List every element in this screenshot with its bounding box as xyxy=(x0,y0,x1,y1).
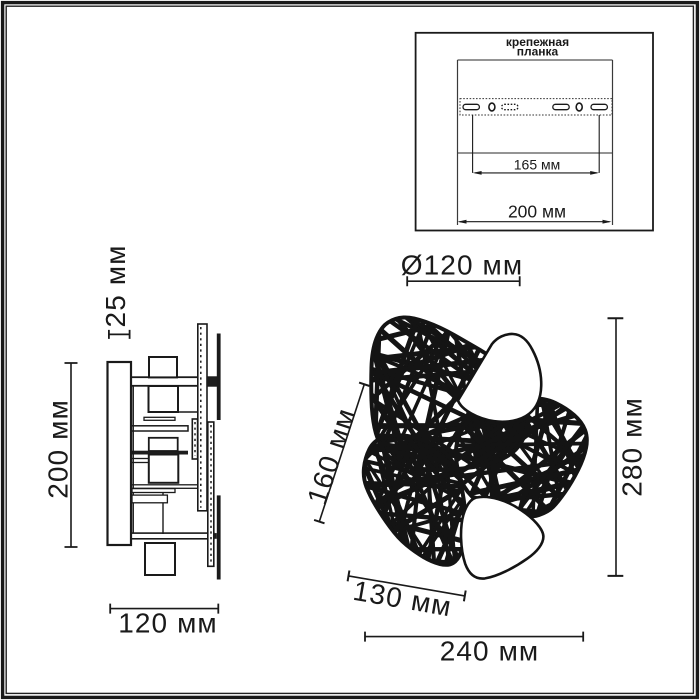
svg-text:планка: планка xyxy=(517,44,559,58)
svg-text:165 мм: 165 мм xyxy=(514,156,561,172)
svg-text:200 мм: 200 мм xyxy=(508,202,566,222)
svg-text:25 мм: 25 мм xyxy=(100,245,131,328)
svg-text:280 мм: 280 мм xyxy=(617,397,648,497)
svg-text:Ø120 мм: Ø120 мм xyxy=(401,250,523,281)
svg-text:120 мм: 120 мм xyxy=(118,608,218,639)
svg-text:240 мм: 240 мм xyxy=(440,636,540,667)
svg-text:200 мм: 200 мм xyxy=(43,399,74,499)
